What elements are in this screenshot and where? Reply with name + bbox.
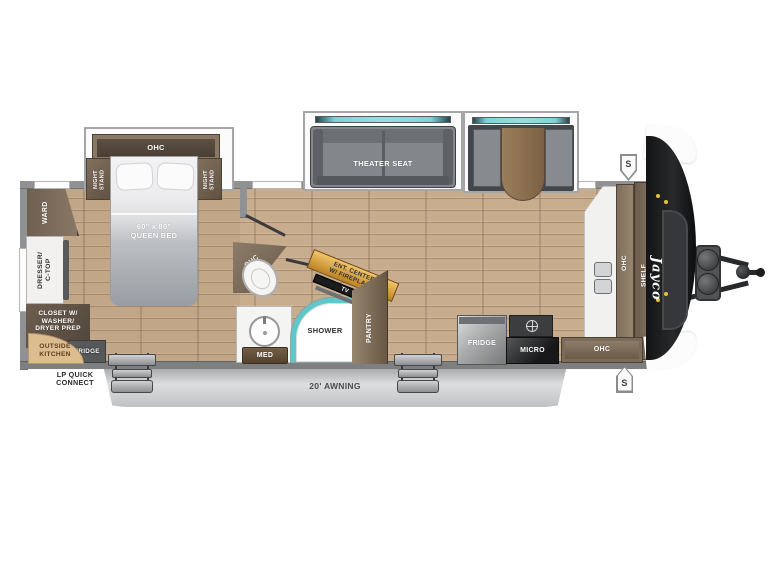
jayco-logo: Jayco — [648, 236, 664, 322]
dinette-booth-right — [545, 129, 573, 187]
kitchen-ohc: OHC — [561, 337, 643, 363]
queen-bed: 60" x 80" QUEEN BED — [110, 156, 198, 306]
pantry-label: PANTRY — [360, 298, 380, 358]
night-stand-right: NIGHT STAND — [196, 158, 222, 200]
speaker-top-label: S — [620, 159, 637, 169]
med-label: MED — [243, 352, 287, 360]
bath-faucet — [263, 316, 266, 324]
entry-steps-left — [108, 351, 156, 396]
hitch-ball — [756, 268, 765, 277]
closet-label: CLOSET W/ WASHER/ DRYER PREP — [26, 310, 90, 333]
speaker-marker-bottom: S — [616, 366, 633, 393]
top-window-2 — [252, 181, 302, 189]
dresser-counter: DRESSER/ C-TOP — [26, 236, 64, 304]
theater-seat: THEATER SEAT — [310, 126, 456, 188]
shower-label: SHOWER — [297, 327, 353, 336]
ohc-side-label: OHC — [619, 241, 631, 285]
step-tread — [394, 354, 442, 366]
propane-tank-2 — [697, 273, 719, 295]
lp-quick-connect-label: LP QUICK CONNECT — [40, 371, 110, 388]
bath-drain — [263, 331, 267, 335]
marker-light-top-1 — [656, 194, 660, 198]
blanket-fold — [111, 213, 197, 215]
theater-front-edge — [317, 176, 449, 185]
theater-window — [315, 116, 451, 123]
kitchen-ohc-label: OHC — [562, 346, 642, 354]
night-stand-right-label: NIGHT STAND — [200, 161, 219, 198]
ward-label: WARD — [35, 193, 57, 233]
dinette-table — [501, 127, 545, 201]
med-cabinet: MED — [242, 347, 288, 364]
theater-seat-label: THEATER SEAT — [311, 160, 455, 169]
speaker-bottom-label: S — [616, 378, 633, 388]
front-window-panel — [662, 210, 688, 330]
top-window-3 — [578, 181, 596, 189]
speaker-marker-top: S — [620, 154, 637, 181]
front-cap: Jayco — [646, 136, 696, 360]
toilet-seat — [247, 265, 274, 293]
burner-icon — [526, 320, 538, 332]
step-tread — [398, 369, 438, 378]
dresser-handle — [63, 240, 69, 300]
awning-label: 20' AWNING — [96, 382, 574, 392]
night-stand-left-label: NIGHT STAND — [90, 161, 109, 198]
stove-cooktop — [509, 315, 553, 337]
bath-sink — [249, 316, 280, 347]
kitchen-fridge-label: FRIDGE — [458, 340, 506, 348]
kitchen-sink-basin-1 — [594, 262, 612, 277]
marker-light-bottom-2 — [664, 292, 668, 296]
dresser-label: DRESSER/ C-TOP — [31, 239, 59, 301]
floorplan-canvas: 20' AWNING WARD DRESSER/ C-TOP CLOSET W/… — [0, 0, 768, 575]
dinette-booth-left — [473, 129, 501, 187]
microwave-label: MICRO — [507, 347, 558, 355]
ohc-side-cabinet: OHC — [616, 184, 634, 348]
outside-kitchen-label: OUTSIDE KITCHEN — [29, 343, 81, 358]
step-tread — [112, 369, 152, 378]
step-tread — [111, 380, 153, 393]
marker-light-top-2 — [664, 200, 668, 204]
top-window-1 — [34, 181, 70, 189]
queen-bed-label: 60" x 80" QUEEN BED — [111, 223, 197, 240]
bedroom-ohc-label: OHC — [93, 144, 219, 153]
pillow-left — [115, 162, 153, 191]
step-tread — [397, 380, 439, 393]
night-stand-left: NIGHT STAND — [86, 158, 112, 200]
entry-steps-right — [394, 351, 442, 396]
kitchen-fridge-top — [459, 317, 505, 324]
dinette-window — [472, 117, 570, 124]
tongue-jack — [736, 265, 750, 279]
step-tread — [108, 354, 156, 366]
pillow-right — [156, 162, 194, 191]
kitchen-sink-basin-2 — [594, 279, 612, 294]
propane-tank-1 — [697, 249, 719, 271]
microwave: MICRO — [506, 337, 559, 364]
kitchen-fridge: FRIDGE — [457, 315, 507, 365]
awning: 20' AWNING — [96, 368, 574, 407]
